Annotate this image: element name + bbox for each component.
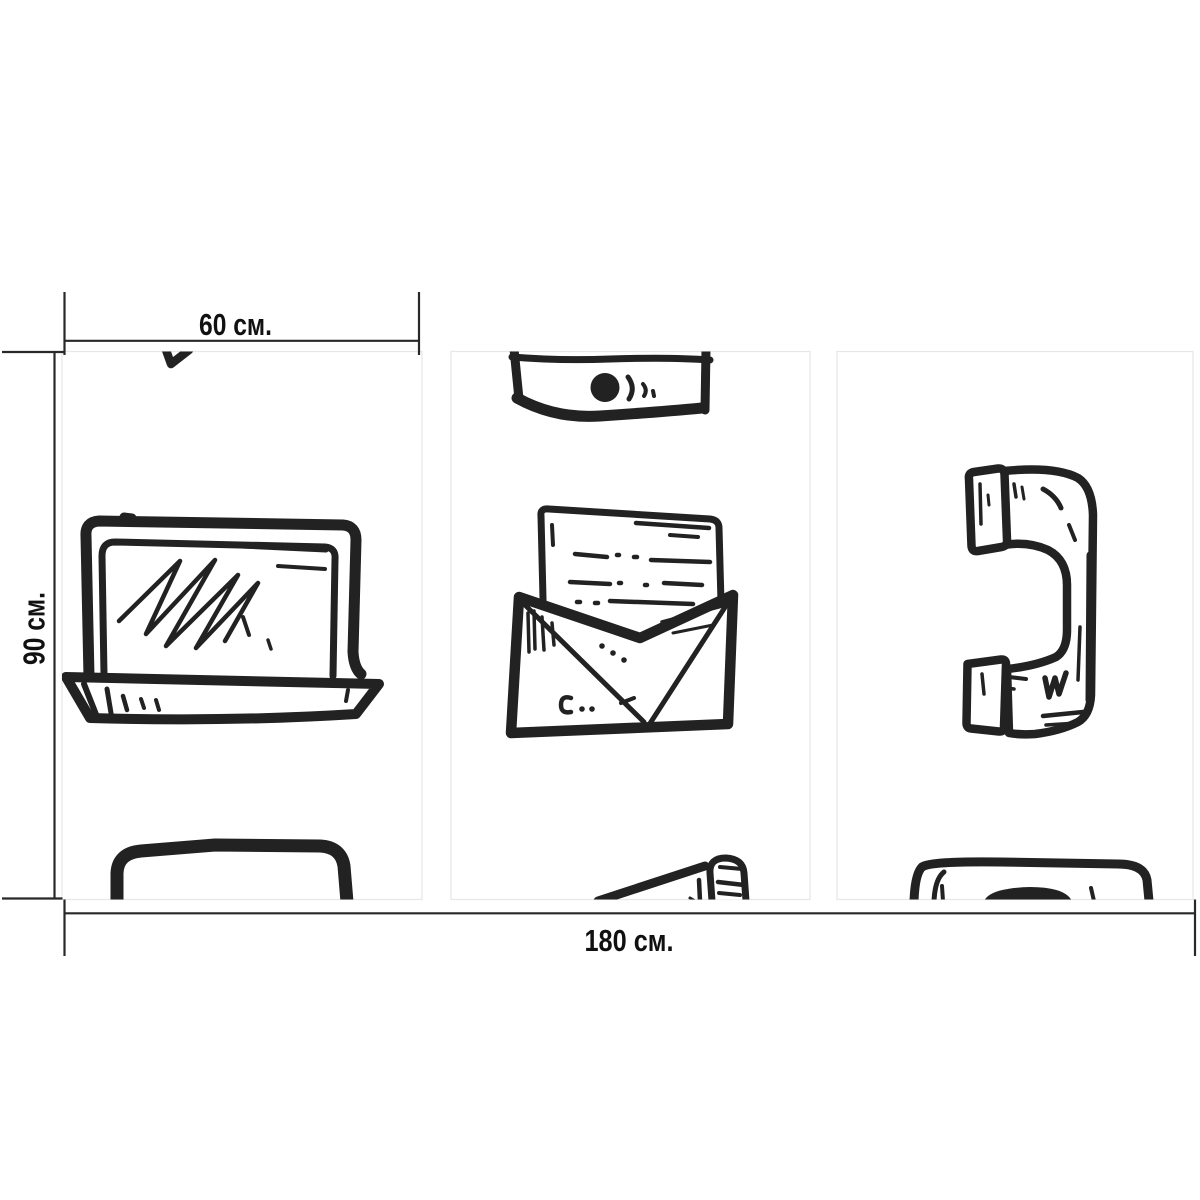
svg-text:180 см.: 180 см. xyxy=(585,923,674,958)
svg-text:90 см.: 90 см. xyxy=(17,592,52,665)
svg-text:60 см.: 60 см. xyxy=(199,307,272,342)
